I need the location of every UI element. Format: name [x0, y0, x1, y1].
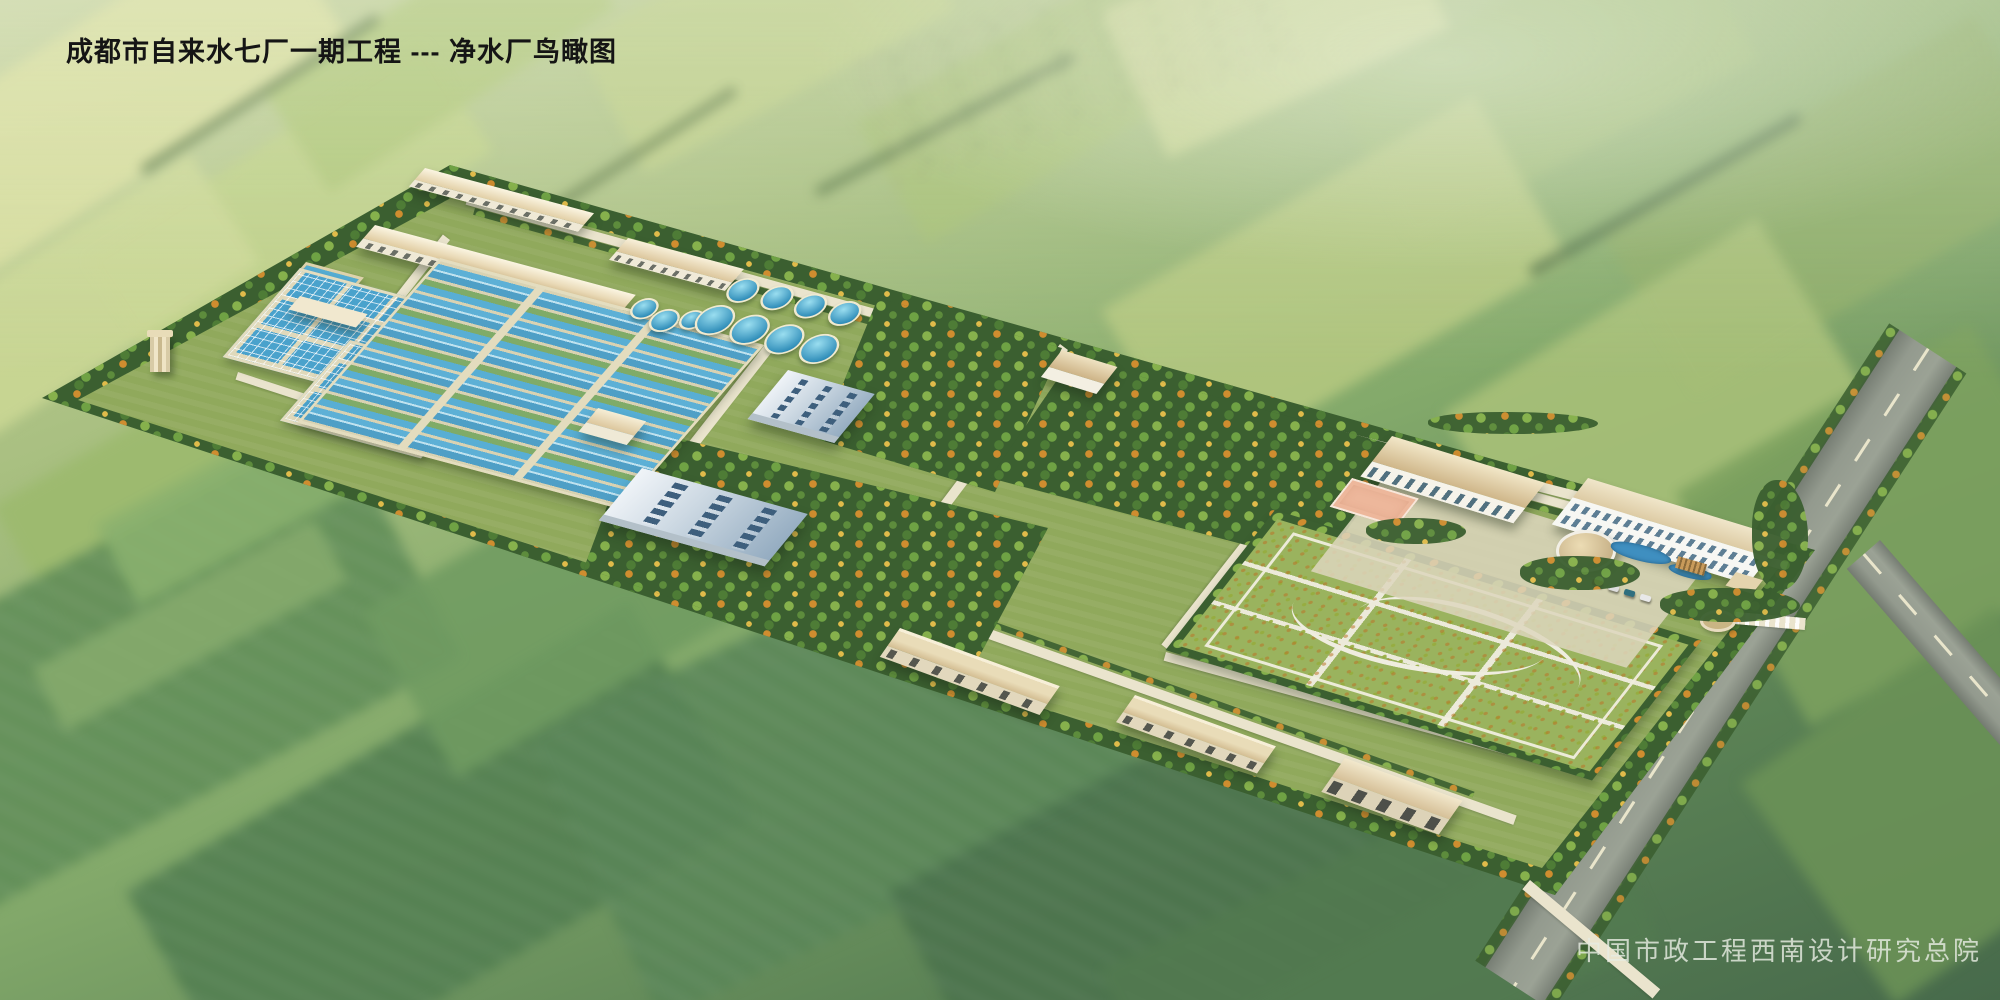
aerial-rendering: 成都市自来水七厂一期工程 --- 净水厂鸟瞰图 中国市政工程西南设计研究总院 [0, 0, 2000, 1000]
design-institute-credit: 中国市政工程西南设计研究总院 [1576, 931, 1982, 968]
water-tower-cap [147, 330, 173, 337]
lane-walkway [398, 287, 545, 449]
lane-walkway [512, 318, 659, 480]
water-tower [150, 334, 170, 372]
tree-clump [1428, 412, 1598, 434]
tree-clump [1752, 480, 1808, 590]
roof-skylight [731, 507, 778, 552]
tree-clump [1660, 588, 1800, 622]
roof-skylight [686, 495, 733, 540]
page-title: 成都市自来水七厂一期工程 --- 净水厂鸟瞰图 [66, 30, 617, 69]
tree-clump [1366, 518, 1466, 544]
roof-skylight [641, 482, 688, 527]
tree-clump [1520, 556, 1640, 590]
clarifier-tank [821, 298, 867, 329]
